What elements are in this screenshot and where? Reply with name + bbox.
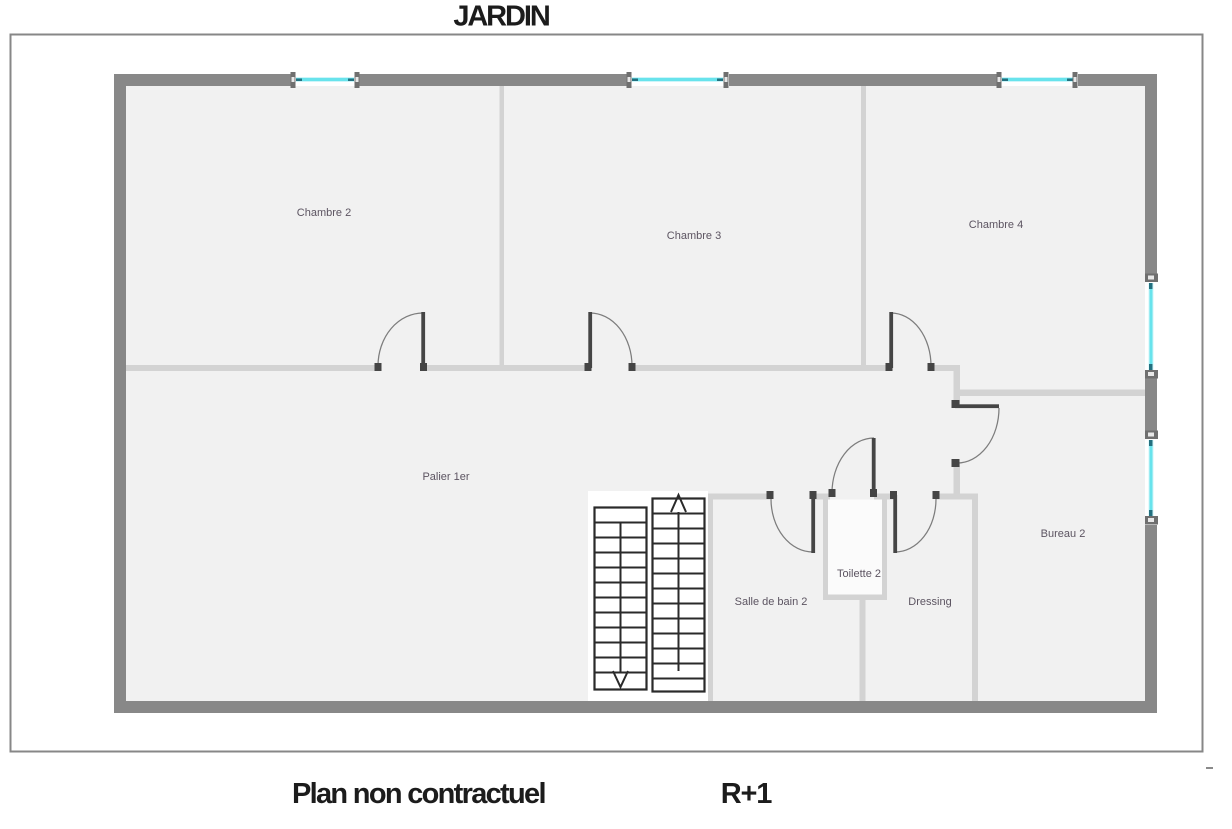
svg-text:JARDIN: JARDIN	[453, 1, 549, 33]
svg-text:Toilette 2: Toilette 2	[837, 568, 881, 580]
svg-text:Chambre 3: Chambre 3	[667, 230, 721, 242]
svg-text:Salle de bain 2: Salle de bain 2	[735, 596, 808, 608]
svg-text:R+1: R+1	[721, 778, 772, 810]
svg-text:Chambre 4: Chambre 4	[969, 219, 1023, 231]
svg-text:Dressing: Dressing	[908, 596, 951, 608]
svg-text:Chambre 2: Chambre 2	[297, 207, 351, 219]
svg-text:Plan non contractuel: Plan non contractuel	[292, 778, 545, 810]
svg-text:Palier 1er: Palier 1er	[422, 471, 469, 483]
svg-text:Bureau 2: Bureau 2	[1041, 528, 1086, 540]
